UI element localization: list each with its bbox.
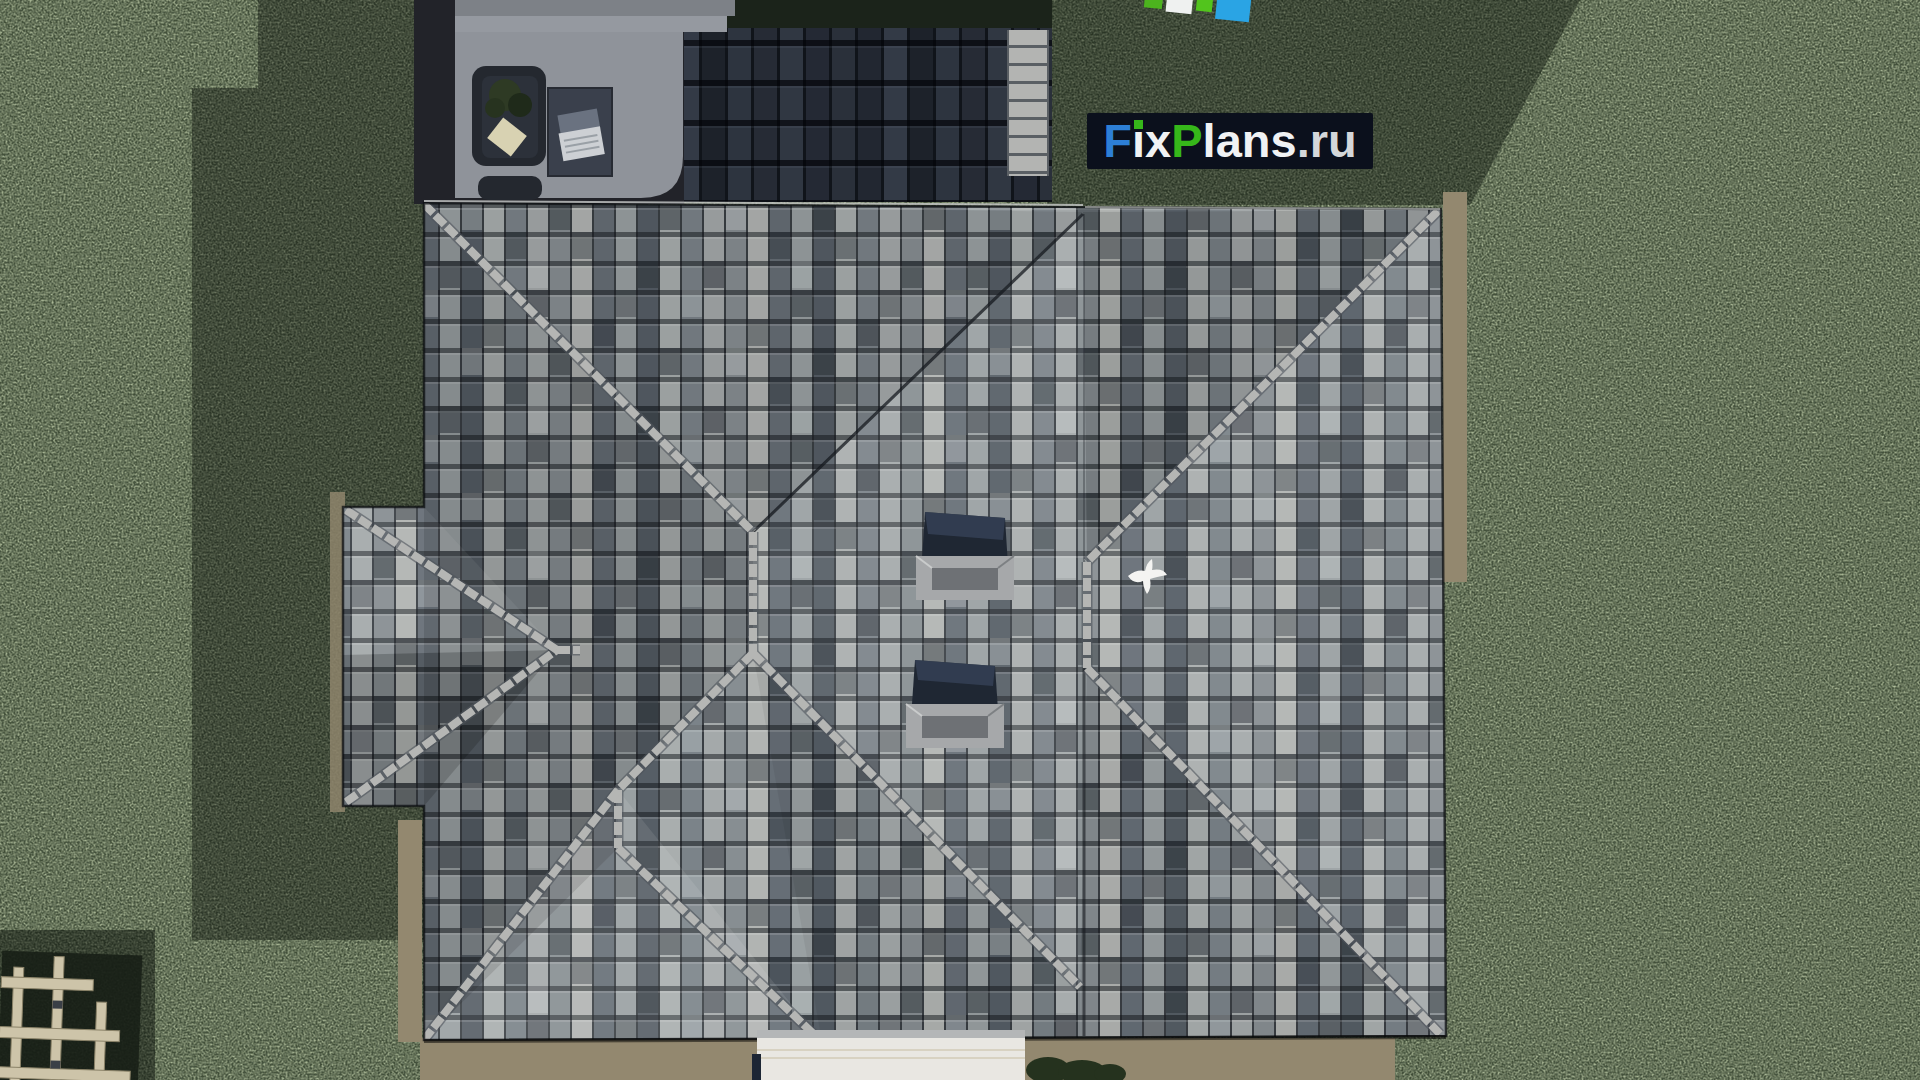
skylight-2 (906, 660, 1004, 748)
skylight-frame-inner (932, 568, 998, 590)
watermark-letter-x: x (1145, 113, 1171, 169)
hedge-strip (683, 0, 1052, 30)
aerial-roof-render: FixPlans.ru (0, 0, 1920, 1080)
fixplans-watermark: FixPlans.ru (1087, 113, 1373, 169)
white-walkway (752, 1030, 1025, 1080)
laptop (555, 109, 604, 162)
render-canvas (0, 0, 1920, 1080)
terrace-step-2 (455, 16, 727, 32)
watermark-letter-p: P (1171, 113, 1202, 169)
walkway-post (752, 1054, 761, 1080)
skylight-1 (916, 512, 1014, 600)
hip-roof (343, 201, 1446, 1042)
watermark-domain: .ru (1297, 113, 1357, 169)
wooden-pergola (0, 951, 142, 1080)
terrace-step-1 (455, 0, 735, 16)
dark-upper-roof (672, 0, 1052, 202)
skylight-frame-inner (922, 716, 988, 738)
watermark-letter-f: F (1103, 113, 1132, 169)
watermark-letters-lans: lans (1203, 113, 1297, 169)
outdoor-sofa-2 (478, 176, 542, 200)
dark-roof-tiles (683, 28, 1052, 202)
watermark-letter-i: i (1132, 113, 1145, 169)
